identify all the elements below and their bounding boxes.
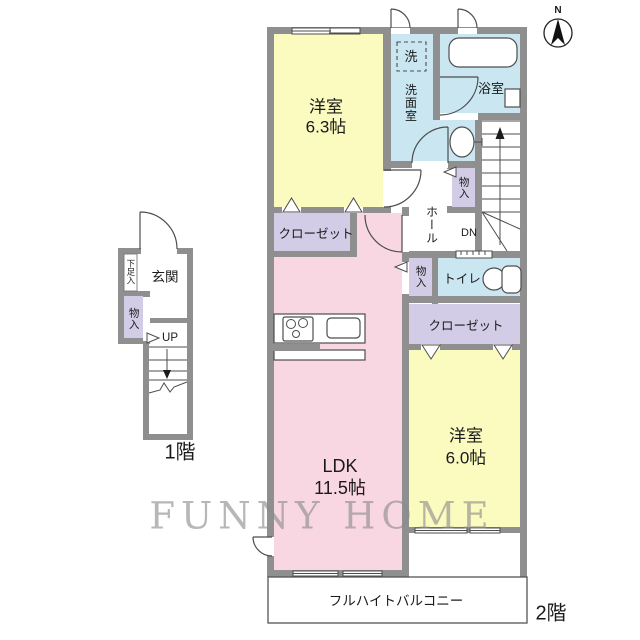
watermark: FUNNY HOME [149,495,494,538]
compass-north-label: N [554,5,561,18]
stairs-2f [482,121,520,251]
bathtub [449,38,517,67]
washbasin [450,127,474,157]
toilet-tank [502,266,521,293]
kitchen-sink [327,318,360,338]
entrance-label: 玄関 [152,270,179,287]
floor2-label: 2階 [535,602,566,627]
ldk-name: LDK [322,455,357,478]
stairs-up-label: UP [162,331,178,345]
toilet-label: トイレ [443,272,481,288]
washroom-window-swing [391,9,410,28]
balcony-label: フルハイトバルコニー [329,594,463,611]
bath-counter [505,89,520,107]
closet-a-label: クローゼット [278,227,353,243]
hall-label: ホール [424,206,439,245]
floor1-storage-label: 物入 [126,308,139,331]
closet-b-label: クローゼット [428,319,503,335]
ldk-storage-label: 物入 [413,266,426,289]
floor1-label: 1階 [164,441,195,466]
washroom-label: 洗面室 [403,84,418,123]
stairs-1f [149,347,187,393]
compass [544,19,572,47]
entrance-door [140,212,177,249]
stairs-break-line [149,382,187,393]
hall-storage-label: 物入 [456,177,469,200]
bedroom-b-size: 6.0帖 [446,447,487,468]
bedroom-b-name: 洋室 [449,425,483,446]
bedroom-a-size: 6.3帖 [306,116,347,137]
bedroom-a-name: 洋室 [309,96,343,117]
bathroom-label: 浴室 [478,81,504,97]
bathroom-window-swing [458,9,477,28]
kitchen-half-wall [267,344,320,351]
washer-label: 洗 [404,49,417,65]
stairs-up-marker [147,333,159,343]
stairs-down-label: DN [461,227,477,241]
shoe-cabinet-label: 下足入 [125,259,136,285]
floor-plan: 洋室 6.3帖 洗 洗面室 浴室 ホール 物入 DN クローゼット 物入 トイレ… [0,0,640,640]
kitchen-counter-edge [274,350,365,360]
